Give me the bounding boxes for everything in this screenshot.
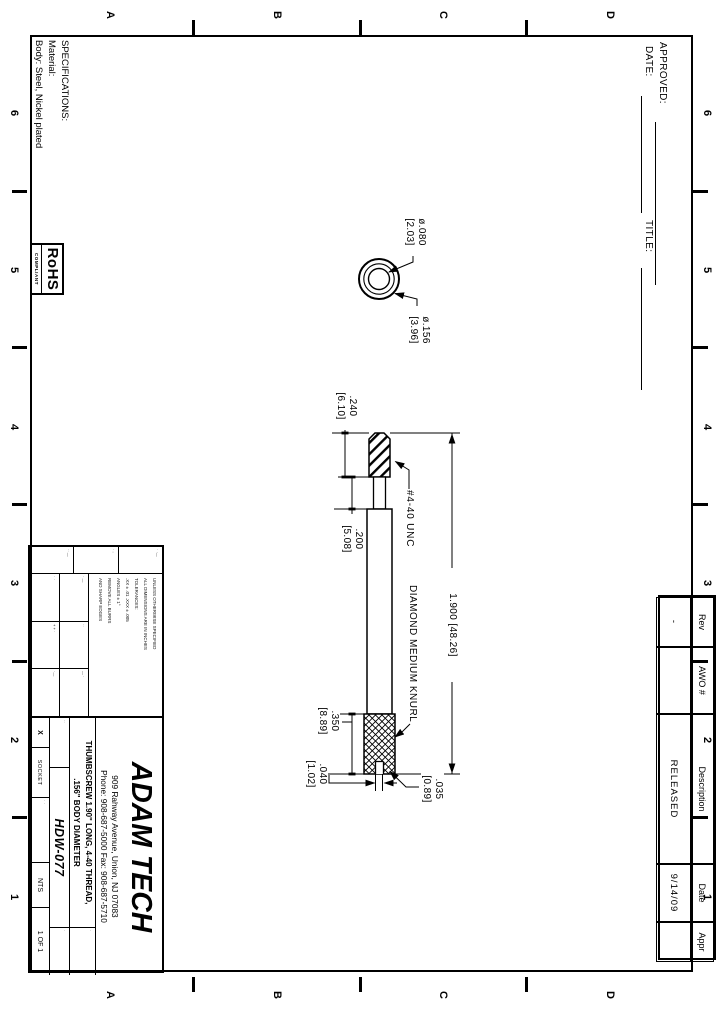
dim-slot-depth-label: .035 [0.89] bbox=[421, 766, 444, 812]
dim-end-small-label: ø.080 [2.03] bbox=[404, 208, 427, 256]
dim-neck-length bbox=[349, 476, 356, 514]
engineering-sheet: 6 5 4 3 2 1 6 5 4 3 2 1 D C B A D C B A … bbox=[0, 0, 720, 1012]
thread-leader bbox=[396, 462, 410, 490]
dim-end-large-label: ø.156 [3.96] bbox=[408, 306, 431, 354]
dim-thread-length-label: .240 [6.10] bbox=[335, 384, 358, 428]
dim-slot-width-label: .040 [1.02] bbox=[305, 752, 328, 796]
end-view bbox=[359, 256, 417, 306]
dim-thread-length bbox=[342, 430, 349, 478]
dim-neck-length-label: .200 [5.08] bbox=[341, 516, 364, 562]
knurl-callout: DIAMOND MEDIUM KNURL bbox=[407, 585, 418, 722]
drawing-sheet-page: 6 5 4 3 2 1 6 5 4 3 2 1 D C B A D C B A … bbox=[0, 0, 720, 1012]
knurl-leader bbox=[395, 724, 410, 737]
dim-overall-label: 1.900 [48.26] bbox=[447, 568, 459, 682]
part-drawing bbox=[0, 0, 720, 1012]
side-view bbox=[364, 433, 395, 774]
dim-slot-width bbox=[329, 775, 397, 783]
dim-knurl-length bbox=[342, 713, 356, 776]
dim-knurl-length-label: .350 [8.89] bbox=[317, 698, 340, 744]
thread-callout: #4-40 UNC bbox=[404, 490, 415, 547]
